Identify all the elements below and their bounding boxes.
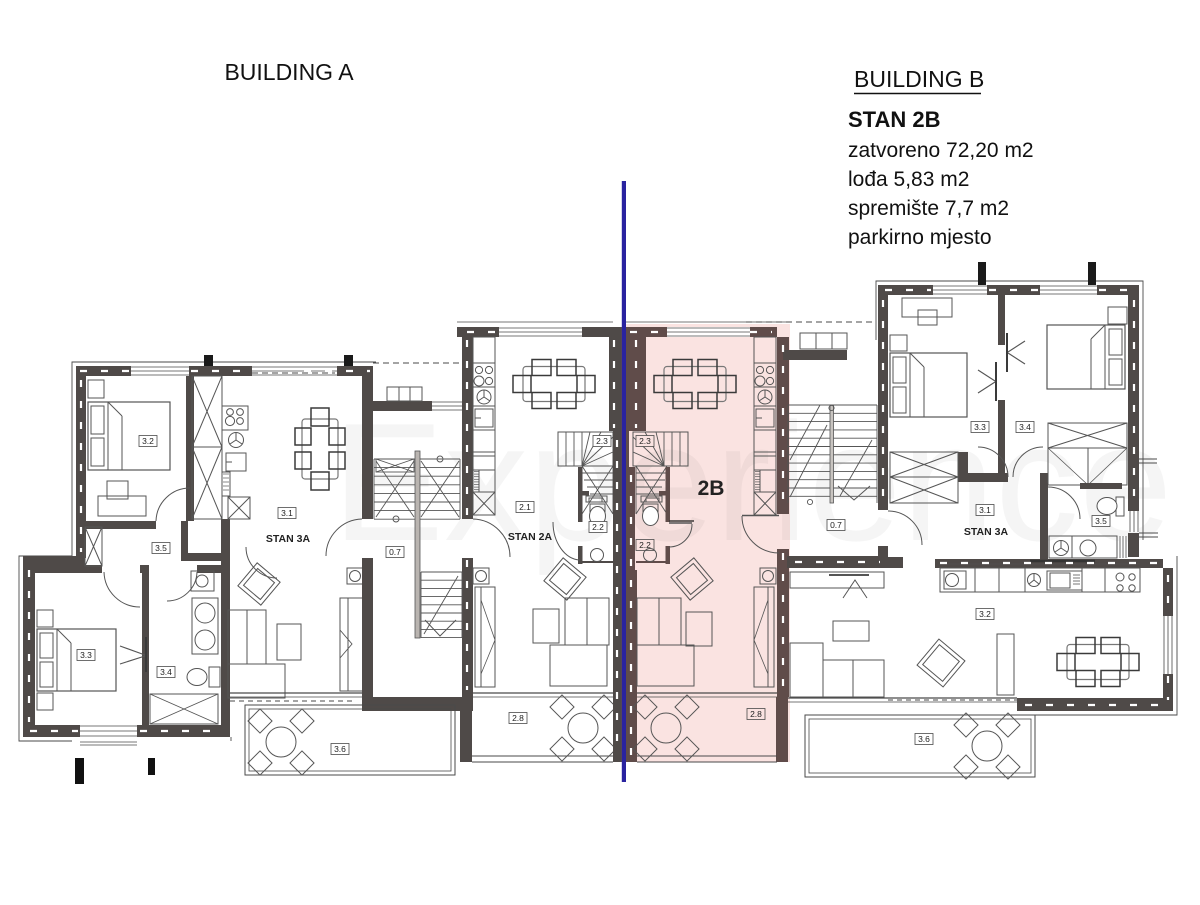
svg-text:2.1: 2.1 [519,502,531,512]
svg-text:zatvoreno 72,20 m2: zatvoreno 72,20 m2 [848,139,1034,162]
svg-text:2.2: 2.2 [592,522,604,532]
svg-text:0.7: 0.7 [830,520,842,530]
svg-text:BUILDING A: BUILDING A [224,59,354,85]
svg-text:3.4: 3.4 [160,667,172,677]
svg-text:3.5: 3.5 [1095,516,1107,526]
svg-text:2.8: 2.8 [512,713,524,723]
svg-text:3.3: 3.3 [974,422,986,432]
svg-text:STAN 3A: STAN 3A [266,533,311,545]
svg-text:STAN 3A: STAN 3A [964,526,1009,538]
svg-text:3.3: 3.3 [80,650,92,660]
svg-text:STAN 2A: STAN 2A [508,531,553,543]
svg-text:2.3: 2.3 [639,436,651,446]
svg-text:3.2: 3.2 [979,609,991,619]
svg-text:parkirno mjesto: parkirno mjesto [848,226,992,249]
svg-text:2B: 2B [698,477,725,500]
svg-text:STAN 2B: STAN 2B [848,107,941,132]
svg-text:spremište 7,7 m2: spremište 7,7 m2 [848,197,1009,220]
svg-text:2.3: 2.3 [596,436,608,446]
svg-text:3.4: 3.4 [1019,422,1031,432]
svg-text:3.1: 3.1 [281,508,293,518]
svg-text:BUILDING B: BUILDING B [854,66,984,92]
svg-text:lođa 5,83 m2: lođa 5,83 m2 [848,168,969,191]
svg-text:3.5: 3.5 [155,543,167,553]
svg-text:3.1: 3.1 [979,505,991,515]
svg-text:3.6: 3.6 [334,744,346,754]
svg-text:2.8: 2.8 [750,709,762,719]
svg-text:3.6: 3.6 [918,734,930,744]
svg-text:3.2: 3.2 [142,436,154,446]
svg-text:0.7: 0.7 [389,547,401,557]
